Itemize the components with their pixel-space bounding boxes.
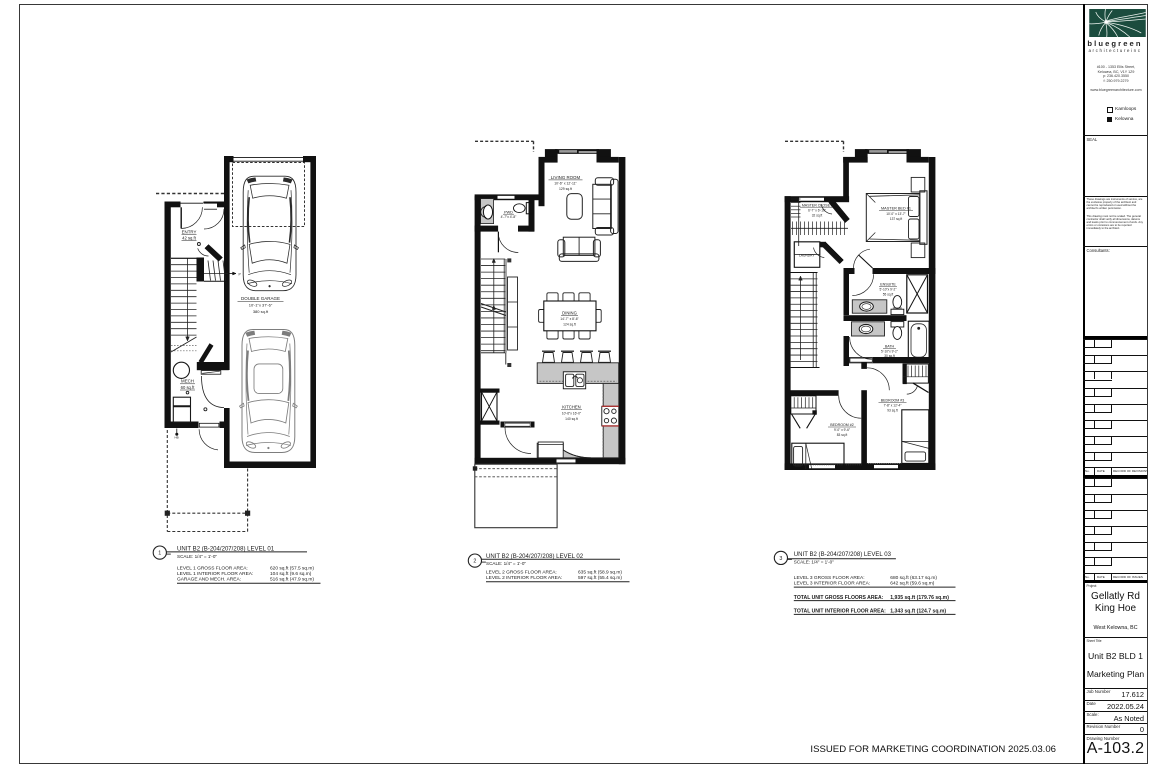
- svg-text:680 sq.ft (63.17 sq.m): 680 sq.ft (63.17 sq.m): [890, 575, 937, 581]
- svg-text:42 sq.ft: 42 sq.ft: [182, 235, 197, 240]
- svg-text:SCALE: 1/4" = 1'-0": SCALE: 1/4" = 1'-0": [177, 554, 217, 559]
- svg-text:DOUBLE GARAGE: DOUBLE GARAGE: [241, 296, 280, 301]
- svg-text:LEVEL 2 GROSS FLOOR AREA:: LEVEL 2 GROSS FLOOR AREA:: [486, 570, 557, 576]
- svg-text:1,935 sq.ft (179.76 sq.m): 1,935 sq.ft (179.76 sq.m): [890, 595, 949, 601]
- svg-text:BATH: BATH: [885, 344, 895, 348]
- svg-text:LEVEL 2 INTERIOR FLOOR AREA:: LEVEL 2 INTERIOR FLOOR AREA:: [486, 575, 562, 581]
- svg-text:104 sq.ft (9.6 sq.m): 104 sq.ft (9.6 sq.m): [270, 571, 312, 577]
- svg-text:7'-8" x 12'-4": 7'-8" x 12'-4": [884, 404, 902, 408]
- svg-text:10'-6"x 16'-0": 10'-6"x 16'-0": [562, 411, 582, 415]
- svg-text:4'-7"x 4'-8": 4'-7"x 4'-8": [501, 215, 518, 219]
- svg-text:5'-10"x 9'-2": 5'-10"x 9'-2": [881, 349, 898, 353]
- svg-text:137 sq.ft: 137 sq.ft: [890, 217, 902, 221]
- svg-text:2: 2: [473, 559, 476, 565]
- svg-text:LEVEL 1 INTERIOR FLOOR AREA:: LEVEL 1 INTERIOR FLOOR AREA:: [177, 571, 253, 577]
- svg-text:KITCHEN: KITCHEN: [562, 405, 580, 410]
- svg-text:MASTER BED #1: MASTER BED #1: [881, 207, 911, 211]
- svg-text:BEDROOM #3: BEDROOM #3: [881, 399, 905, 403]
- svg-text:1: 1: [158, 551, 161, 557]
- svg-text:10'-6" x 12'-11": 10'-6" x 12'-11": [554, 182, 577, 186]
- svg-text:129 sq.ft: 129 sq.ft: [559, 187, 572, 191]
- svg-text:1,343 sq.ft (124.7 sq.m): 1,343 sq.ft (124.7 sq.m): [890, 609, 946, 615]
- svg-text:32 sq.ft: 32 sq.ft: [812, 213, 823, 217]
- svg-text:SCALE: 1/4" = 1'-0": SCALE: 1/4" = 1'-0": [486, 561, 526, 566]
- svg-text:MECH: MECH: [181, 379, 194, 384]
- svg-text:635 sq.ft (58.9 sq.m): 635 sq.ft (58.9 sq.m): [578, 570, 622, 576]
- svg-text:MASTER CLOSET: MASTER CLOSET: [802, 203, 833, 207]
- svg-text:ENSUITE: ENSUITE: [880, 283, 896, 287]
- svg-text:HB: HB: [175, 436, 179, 440]
- svg-text:14'-7" x 8'-6": 14'-7" x 8'-6": [560, 317, 579, 321]
- svg-text:3: 3: [779, 556, 782, 562]
- svg-text:516 sq.ft (47.9 sq.m): 516 sq.ft (47.9 sq.m): [270, 576, 314, 582]
- svg-text:620 sq.ft (57.5 sq.m): 620 sq.ft (57.5 sq.m): [270, 565, 314, 571]
- svg-text:TOTAL UNIT INTERIOR FLOOR AREA: TOTAL UNIT INTERIOR FLOOR AREA:: [794, 609, 886, 615]
- svg-text:55 sq.ft: 55 sq.ft: [883, 292, 894, 296]
- svg-text:LEVEL 1 GROSS FLOOR AREA:: LEVEL 1 GROSS FLOOR AREA:: [177, 565, 248, 571]
- svg-text:P: P: [239, 273, 242, 277]
- svg-text:10'-0" x 13'-7": 10'-0" x 13'-7": [886, 212, 906, 216]
- svg-text:642 sq.ft (59.6 sq.m): 642 sq.ft (59.6 sq.m): [890, 581, 934, 587]
- svg-text:LEVEL 3 INTERIOR FLOOR AREA:: LEVEL 3 INTERIOR FLOOR AREA:: [794, 581, 870, 587]
- svg-text:5'-10"x 9'-2": 5'-10"x 9'-2": [880, 288, 897, 292]
- svg-text:124 sq.ft: 124 sq.ft: [563, 323, 576, 327]
- svg-text:83 sq.ft: 83 sq.ft: [837, 433, 848, 437]
- svg-text:380 sq.ft: 380 sq.ft: [253, 309, 269, 314]
- svg-text:UNIT B2 (B-204/207/208) LEVEL: UNIT B2 (B-204/207/208) LEVEL 03: [794, 552, 892, 558]
- svg-text:SCALE: 1/4" = 1'-0": SCALE: 1/4" = 1'-0": [794, 560, 834, 565]
- svg-text:BEDROOM #2: BEDROOM #2: [830, 423, 854, 427]
- svg-text:10'-1"x 37'-6": 10'-1"x 37'-6": [249, 303, 273, 308]
- svg-text:LIVING ROOM: LIVING ROOM: [551, 175, 581, 180]
- svg-text:93 sq.ft: 93 sq.ft: [887, 408, 898, 412]
- svg-text:140 sq.ft: 140 sq.ft: [565, 417, 578, 421]
- svg-text:597 sq.ft (55.4 sq.m): 597 sq.ft (55.4 sq.m): [578, 575, 622, 581]
- svg-text:TOTAL UNIT GROSS FLOORS AREA:: TOTAL UNIT GROSS FLOORS AREA:: [794, 595, 884, 601]
- svg-text:GARAGE AND MECH. AREA:: GARAGE AND MECH. AREA:: [177, 576, 241, 582]
- svg-text:LEVEL 3 GROSS FLOOR AREA:: LEVEL 3 GROSS FLOOR AREA:: [794, 575, 865, 581]
- svg-text:60 sq.ft: 60 sq.ft: [181, 385, 196, 390]
- svg-text:ENTRY: ENTRY: [182, 229, 197, 234]
- svg-text:LAUNDRY: LAUNDRY: [799, 254, 815, 258]
- svg-text:PWD: PWD: [504, 210, 513, 214]
- svg-text:9'-0" x 9'-6": 9'-0" x 9'-6": [834, 428, 850, 432]
- svg-text:DINING: DINING: [562, 311, 577, 316]
